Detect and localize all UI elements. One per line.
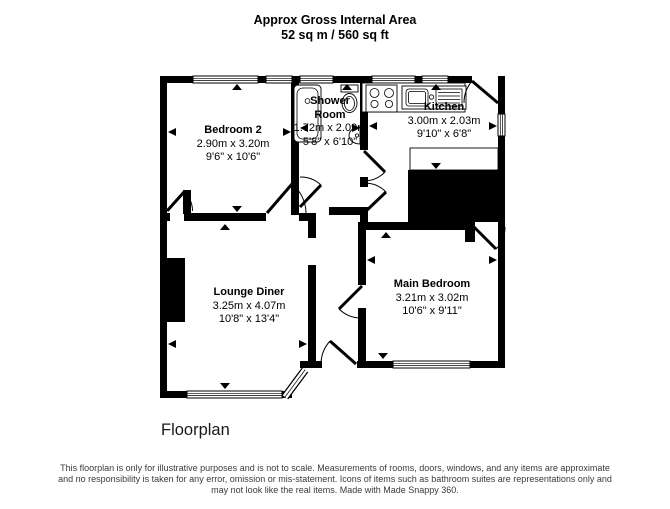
room-metric: 1.72m x 2.09m [294,122,367,136]
room-imperial: 10'8" x 13'4" [213,313,286,327]
room-metric: 3.00m x 2.03m [408,115,481,129]
room-imperial: 10'6" x 9'11" [394,305,470,319]
room-name: Room [294,109,367,123]
window [422,76,448,83]
void-area [408,170,498,222]
bay-window [285,370,305,397]
room-name: Lounge Diner [213,286,286,300]
room-label-bedroom2: Bedroom 2 2.90m x 3.20m 9'6" x 10'6" [197,124,270,165]
plan-title: Floorplan [161,421,230,440]
window [266,76,292,83]
window [193,76,258,83]
room-metric: 2.90m x 3.20m [197,138,270,152]
floorplan-drawing [0,0,670,509]
room-name: Shower [294,95,367,109]
header-line2: 52 sq m / 560 sq ft [0,28,670,43]
hob-icon [366,85,397,112]
window [498,114,505,136]
disclaimer: This floorplan is only for illustrative … [0,463,670,496]
room-metric: 3.21m x 3.02m [394,292,470,306]
gross-internal-area-header: Approx Gross Internal Area 52 sq m / 560… [0,13,670,42]
room-imperial: 9'10" x 6'8" [408,128,481,142]
disclaimer-line3: may not look like the real items. Made w… [0,485,670,496]
room-imperial: 9'6" x 10'6" [197,151,270,165]
room-imperial: 5'8" x 6'10" [294,136,367,150]
kitchen-worktop [410,148,498,170]
chimney-breast [167,258,185,322]
window [372,76,415,83]
room-name: Main Bedroom [394,278,470,292]
door-swing [364,151,385,181]
disclaimer-line2: and no responsibility is taken for any e… [0,474,670,485]
disclaimer-line1: This floorplan is only for illustrative … [0,463,670,474]
room-label-shower-room: Shower Room 1.72m x 2.09m 5'8" x 6'10" [294,95,367,149]
room-label-main-bedroom: Main Bedroom 3.21m x 3.02m 10'6" x 9'11" [394,278,470,319]
window [187,391,282,398]
window [300,76,333,83]
header-line1: Approx Gross Internal Area [0,13,670,28]
room-label-kitchen: Kitchen 3.00m x 2.03m 9'10" x 6'8" [408,101,481,142]
door-swing [300,177,321,207]
door-swing [267,184,306,213]
floorplan-page: { "header": { "line1": "Approx Gross Int… [0,0,670,509]
window [393,361,470,368]
room-name: Kitchen [408,101,481,115]
room-name: Bedroom 2 [197,124,270,138]
door-swing [364,183,386,213]
door-swing [464,81,498,103]
front-door-swing [321,341,356,364]
room-metric: 3.25m x 4.07m [213,300,286,314]
room-label-lounge-diner: Lounge Diner 3.25m x 4.07m 10'8" x 13'4" [213,286,286,327]
